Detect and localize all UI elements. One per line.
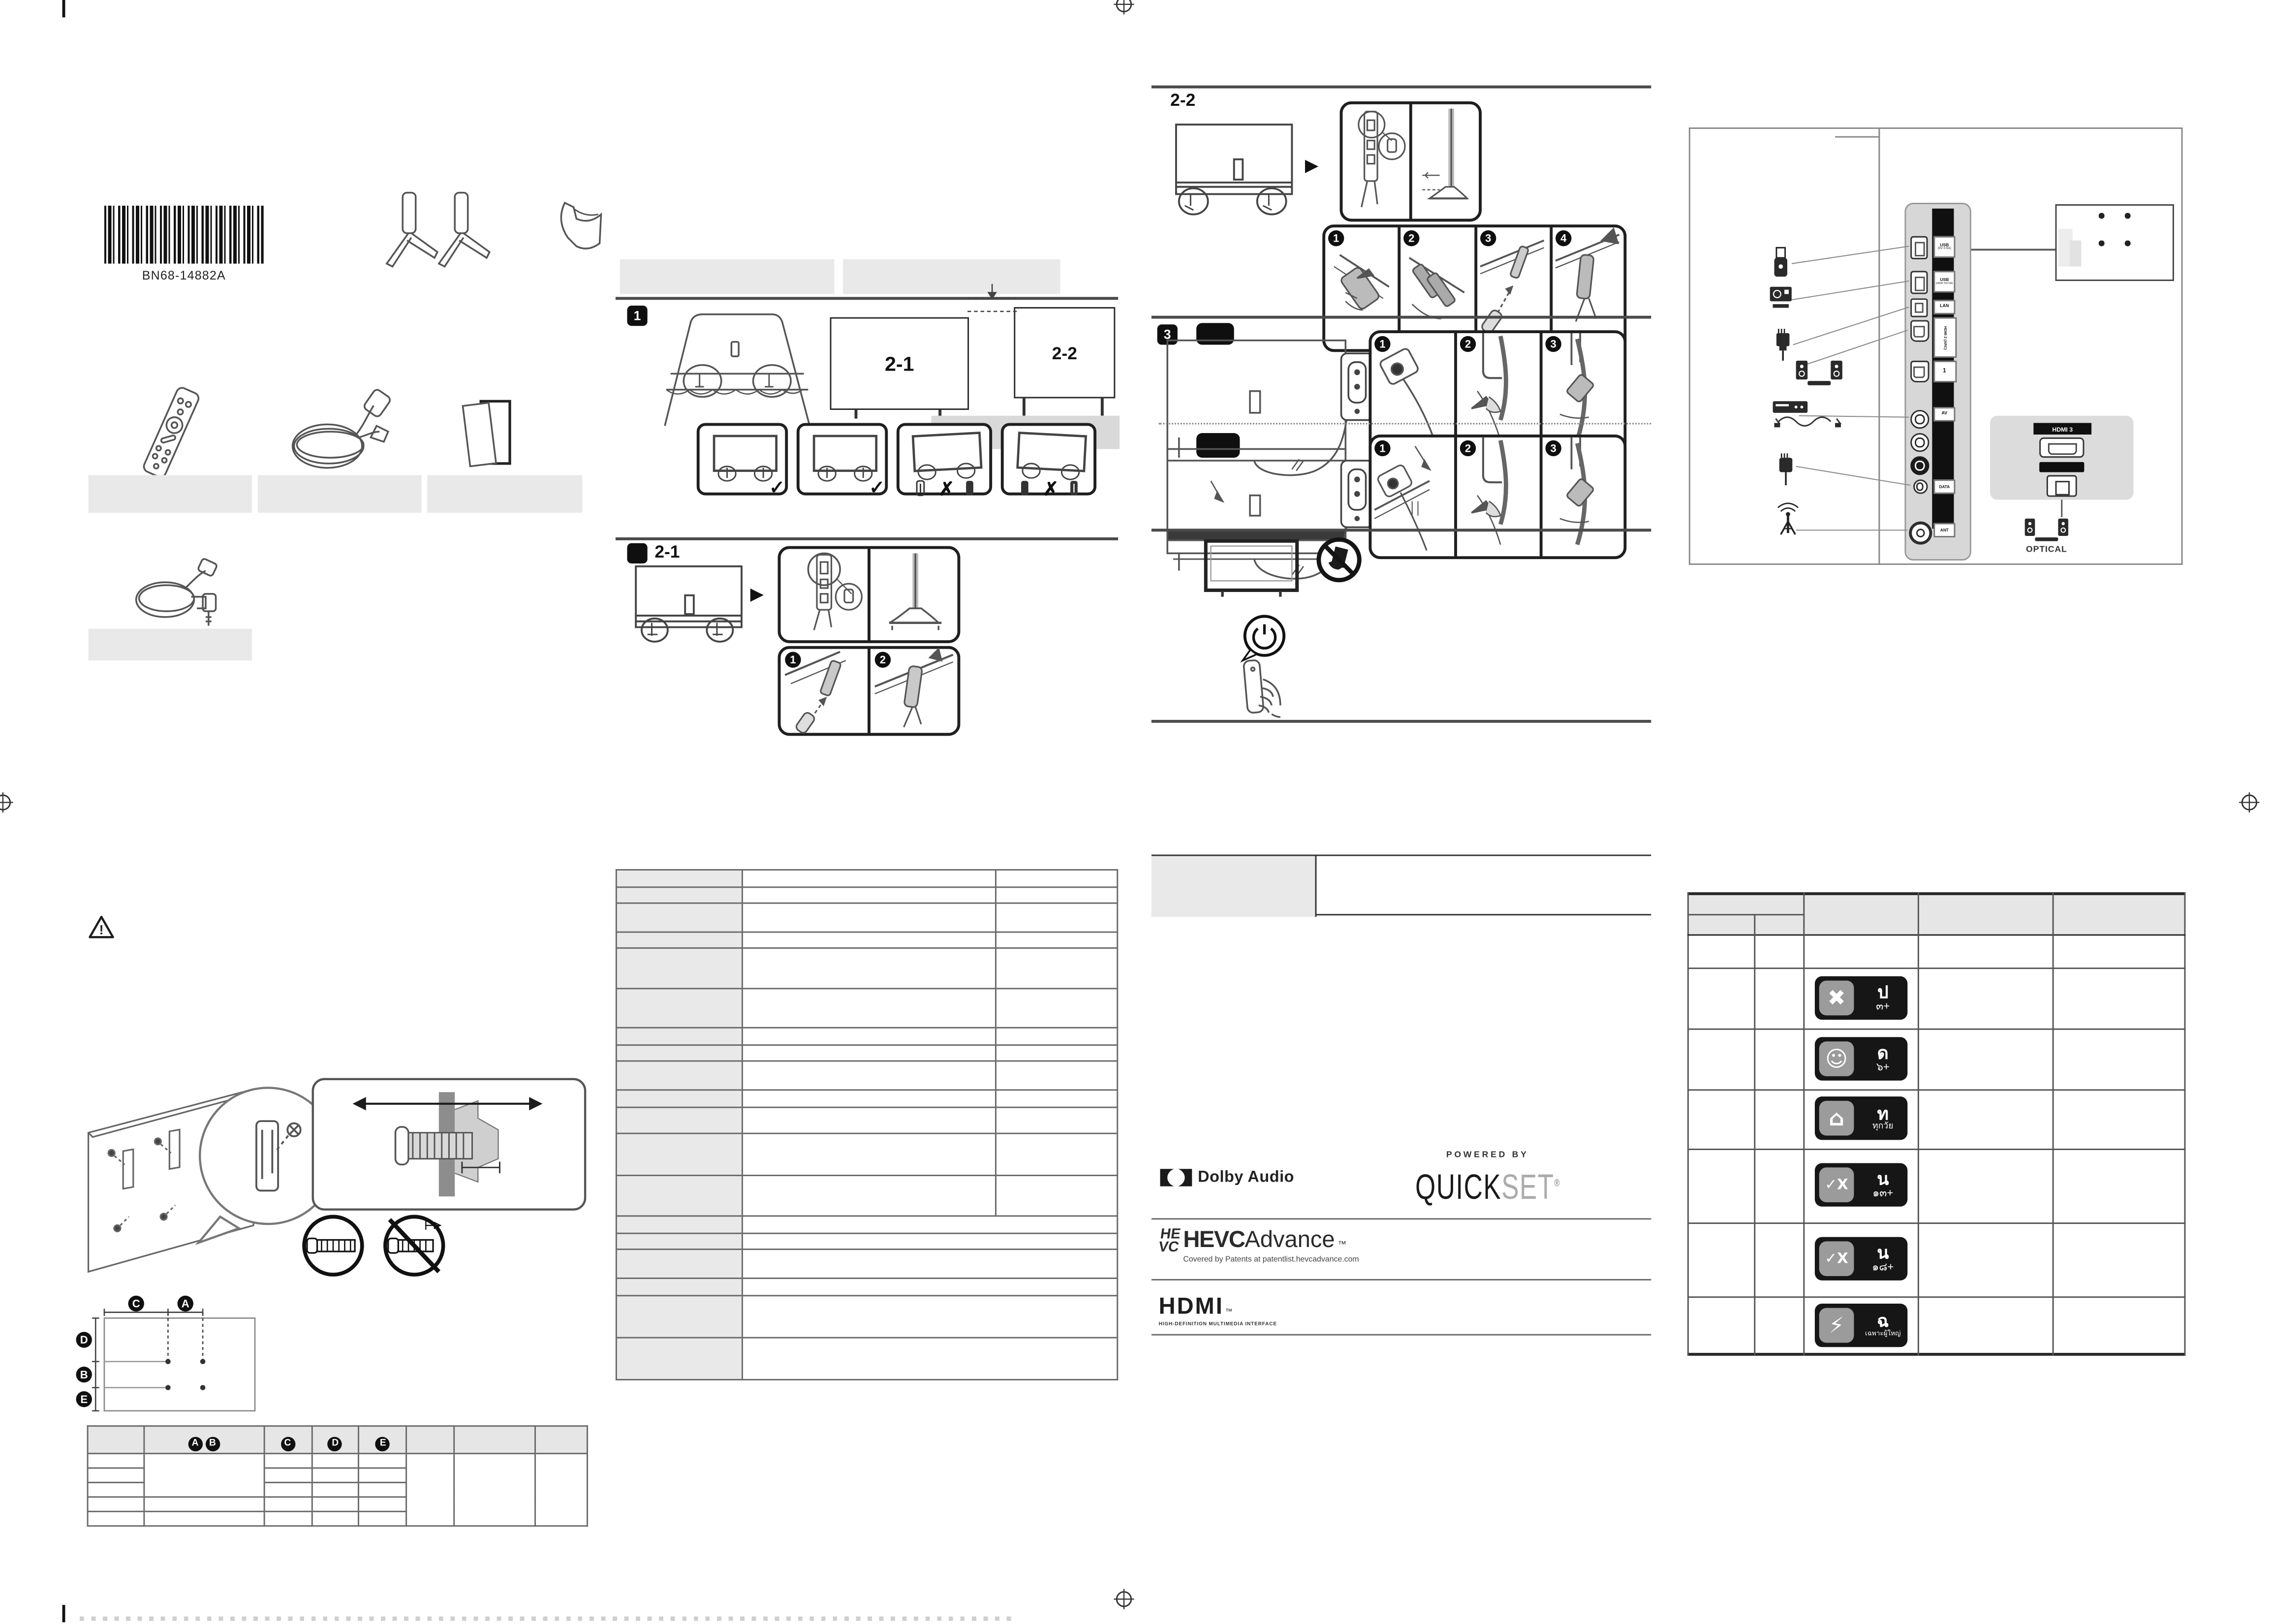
hdmi-tm: ™ bbox=[1225, 1308, 1233, 1317]
optical-port bbox=[2047, 475, 2077, 497]
spec-value bbox=[742, 948, 996, 988]
cell bbox=[311, 1454, 359, 1468]
hdmi3-label: HDMI 3 bbox=[2033, 423, 2091, 435]
panel-divider bbox=[1540, 436, 1542, 558]
spec-label bbox=[616, 932, 742, 948]
spec-table bbox=[616, 869, 1118, 1380]
spec-value bbox=[742, 1045, 996, 1061]
tv-front-diagram bbox=[1204, 539, 1302, 600]
screw-length-ok-icon bbox=[298, 1211, 458, 1280]
vesa-table-header-cell bbox=[88, 1426, 144, 1454]
svg-text:B: B bbox=[80, 1369, 88, 1381]
spec-value bbox=[742, 1249, 1118, 1279]
no-touch-screen-icon bbox=[1315, 536, 1363, 584]
svg-text:✗: ✗ bbox=[1043, 479, 1058, 500]
cell bbox=[359, 1454, 407, 1468]
tv-2-2-front: 2-2 bbox=[1014, 307, 1115, 398]
spec-value bbox=[742, 1216, 1118, 1233]
rating-symbol: ⚡ bbox=[1819, 1308, 1854, 1343]
section-2-2-label: 2-2 bbox=[1170, 90, 1195, 110]
data-cable-icon bbox=[1775, 452, 1796, 487]
accessory-label-docs bbox=[427, 475, 582, 513]
cell bbox=[144, 1497, 264, 1511]
spec-label bbox=[616, 887, 742, 903]
cell bbox=[407, 1454, 455, 1526]
spec-value bbox=[996, 932, 1118, 948]
hevc-tagline: Covered by Patents at patentlist.hevcadv… bbox=[1183, 1256, 1359, 1265]
hevc-mark-top: HE bbox=[1159, 1228, 1182, 1242]
tv-2-2-label: 2-2 bbox=[1052, 343, 1077, 363]
vesa-table-header-cell bbox=[407, 1426, 455, 1454]
advance-text: Advance bbox=[1244, 1228, 1335, 1254]
spec-value bbox=[996, 903, 1118, 932]
info-table-label-cell bbox=[1151, 856, 1317, 917]
height-difference-marks bbox=[967, 284, 1020, 319]
optical-speakers-icon bbox=[2022, 517, 2071, 545]
svg-text:✗: ✗ bbox=[938, 479, 954, 500]
cell bbox=[144, 1511, 264, 1526]
cell bbox=[144, 1454, 264, 1497]
tv-2-1-label: 2-1 bbox=[885, 352, 914, 375]
spec-label bbox=[616, 989, 742, 1028]
spec-value bbox=[742, 903, 996, 932]
vesa-spec-table: AB C D E bbox=[87, 1425, 588, 1527]
antenna-icon bbox=[1775, 504, 1800, 537]
spec-label bbox=[616, 1296, 742, 1338]
spec-value bbox=[996, 1175, 1118, 1216]
spec-value bbox=[996, 887, 1118, 903]
spec-value bbox=[742, 989, 996, 1028]
hole-dot bbox=[2099, 241, 2104, 246]
hole-dot bbox=[2125, 241, 2130, 246]
quickset-registered: ® bbox=[1555, 1179, 1560, 1190]
arrow-right-icon: ▶ bbox=[1305, 156, 1318, 174]
cell bbox=[264, 1454, 311, 1468]
spec-label bbox=[616, 1133, 742, 1175]
wall-mount-screw-callout bbox=[311, 1078, 587, 1211]
hevc-mark-icon: HE VC bbox=[1156, 1228, 1181, 1265]
cell bbox=[359, 1497, 407, 1511]
speakers-icon bbox=[1793, 359, 1845, 388]
power-step2-graphic-2 bbox=[1457, 437, 1537, 556]
info-table bbox=[1151, 855, 1651, 916]
documents-icon bbox=[461, 397, 516, 469]
spec-label bbox=[616, 1216, 742, 1233]
rating-badge-adult: ⚡ฉเฉพาะผู้ใหญ่ bbox=[1815, 1304, 1907, 1347]
spec-value bbox=[996, 1061, 1118, 1090]
hevc-tm: ™ bbox=[1338, 1241, 1347, 1250]
arrow-right-icon: ▶ bbox=[750, 585, 764, 602]
section-1-marker: 1 bbox=[627, 306, 647, 326]
rating-badge-general: ⌂ททุกวัย bbox=[1815, 1096, 1907, 1140]
spec-value bbox=[742, 870, 996, 887]
spec-value bbox=[742, 887, 996, 903]
tv-2-1-foot bbox=[855, 410, 858, 419]
dolby-icon bbox=[1159, 1167, 1194, 1187]
svg-text:A: A bbox=[182, 1298, 189, 1310]
svg-text:E: E bbox=[80, 1393, 88, 1405]
section-2-1-label: 2-1 bbox=[654, 542, 680, 562]
bracket-shape bbox=[2070, 241, 2082, 267]
optical-line bbox=[2061, 500, 2062, 517]
cell bbox=[311, 1497, 359, 1511]
holes-connector-line bbox=[1971, 249, 2055, 250]
badge-d: D bbox=[328, 1436, 342, 1450]
spec-value bbox=[996, 948, 1118, 988]
cell bbox=[88, 1468, 144, 1482]
cell bbox=[264, 1511, 311, 1526]
leg-sideview-2-2 bbox=[1417, 106, 1481, 218]
spec-value bbox=[996, 1045, 1118, 1061]
tv-2-1-front: 2-1 bbox=[830, 317, 969, 410]
stand-ok-card-2: ✓ bbox=[797, 423, 888, 495]
spec-value bbox=[742, 1338, 1118, 1379]
spec-value bbox=[996, 870, 1118, 887]
spec-value bbox=[996, 1107, 1118, 1133]
spec-label bbox=[616, 1175, 742, 1216]
spec-value bbox=[742, 1233, 1118, 1249]
spec-label bbox=[616, 1090, 742, 1107]
rating-symbol: ⌂ bbox=[1819, 1101, 1854, 1136]
barcode-label: BN68-14882A bbox=[104, 268, 264, 282]
spec-value bbox=[996, 1090, 1118, 1107]
accessory-label-remote bbox=[89, 475, 252, 513]
powered-by-text: POWERED BY bbox=[1408, 1152, 1567, 1160]
accessory-label-cable bbox=[258, 475, 422, 513]
crop-tick-top bbox=[62, 0, 65, 17]
cell bbox=[88, 1482, 144, 1497]
spec-label bbox=[616, 1249, 742, 1279]
tv-back-2-1-diagram bbox=[633, 563, 746, 645]
cell bbox=[264, 1482, 311, 1497]
cell bbox=[454, 1454, 535, 1526]
power-on-remote-graphic bbox=[1224, 613, 1302, 720]
vesa-table-header-ab: AB bbox=[144, 1426, 264, 1454]
cell bbox=[311, 1511, 359, 1526]
panel-divider bbox=[868, 648, 870, 735]
hevc-text: HEVC bbox=[1183, 1228, 1244, 1254]
rating-header-bg bbox=[1687, 892, 2185, 934]
registration-mark-right bbox=[2239, 792, 2259, 812]
cell bbox=[535, 1454, 588, 1526]
vesa-table-header-d: D bbox=[311, 1426, 359, 1454]
warning-icon: ! bbox=[89, 915, 115, 938]
panel-divider bbox=[868, 548, 870, 642]
cell bbox=[264, 1497, 311, 1511]
ethernet-cable-icon bbox=[1773, 327, 1793, 362]
rating-symbol: ✖ bbox=[1819, 981, 1854, 1016]
badge-b: B bbox=[205, 1436, 219, 1450]
hard-drive-icon bbox=[1769, 285, 1793, 309]
spec-label bbox=[616, 1338, 742, 1379]
badge-a: A bbox=[188, 1436, 202, 1450]
optical-label bbox=[2039, 462, 2084, 472]
panel-divider bbox=[1454, 436, 1457, 558]
svg-text:D: D bbox=[80, 1334, 88, 1346]
hevc-advance-logo: HE VC HEVC Advance ™ Covered by Patents … bbox=[1159, 1228, 1359, 1265]
section-1-number: 1 bbox=[634, 309, 641, 323]
cell bbox=[359, 1482, 407, 1497]
spec-value bbox=[996, 989, 1118, 1028]
power-step3-graphic-2 bbox=[1543, 437, 1622, 556]
divider bbox=[1151, 1218, 1651, 1219]
optical-text: OPTICAL bbox=[2013, 546, 2080, 555]
remote-control-icon bbox=[133, 385, 209, 481]
rating-badge-d6: ☺ด๖+ bbox=[1815, 1037, 1907, 1080]
spec-label bbox=[616, 903, 742, 932]
spec-value bbox=[996, 1133, 1118, 1175]
power-cable-icon bbox=[284, 388, 391, 481]
spec-label bbox=[616, 948, 742, 988]
registration-mark-bottom bbox=[1114, 1589, 1134, 1609]
holder-label-band bbox=[843, 259, 1060, 294]
crop-tick-bottom bbox=[62, 1605, 65, 1622]
rating-badge-n18: ✓Xน๑๘+ bbox=[1815, 1237, 1907, 1280]
stand-ok-card-1: ✓ bbox=[697, 423, 788, 495]
cell bbox=[311, 1468, 359, 1482]
cable-holder-icon bbox=[553, 194, 611, 255]
badge-c: C bbox=[280, 1436, 295, 1450]
dolby-text: Dolby Audio bbox=[1198, 1169, 1294, 1186]
rating-symbol: ✓X bbox=[1819, 1241, 1854, 1276]
badge-e: E bbox=[376, 1436, 390, 1450]
cell bbox=[359, 1511, 407, 1526]
quickset-quick: QUICK bbox=[1415, 1167, 1501, 1206]
leg-closeup-2-1 bbox=[785, 550, 863, 639]
divider bbox=[1151, 86, 1651, 88]
spec-label bbox=[616, 870, 742, 887]
svg-text:!: ! bbox=[99, 922, 104, 937]
quickset-logo: QUICKSET® bbox=[1402, 1167, 1573, 1208]
rating-symbol: ☺ bbox=[1819, 1041, 1854, 1076]
tv-back-2-2-diagram bbox=[1173, 122, 1304, 220]
spec-label bbox=[616, 1061, 742, 1090]
stand-legs-icon bbox=[379, 188, 521, 273]
soft-table-diagram bbox=[648, 310, 824, 432]
panel-divider bbox=[1409, 103, 1412, 220]
power-step1-graphic-2 bbox=[1371, 437, 1451, 556]
spec-value bbox=[742, 1278, 1118, 1295]
vesa-table-header-cell bbox=[454, 1426, 535, 1454]
step1-graphic-2-1 bbox=[782, 649, 866, 733]
vesa-dimension-diagram: CADBE bbox=[75, 1295, 267, 1422]
spec-value bbox=[742, 1175, 996, 1216]
divider bbox=[1151, 529, 1651, 531]
tv-2-2-leg bbox=[1023, 398, 1026, 415]
leg-closeup-2-2 bbox=[1344, 106, 1408, 218]
rating-badge-p3: ✖ป๓+ bbox=[1815, 976, 1907, 1020]
cell bbox=[359, 1468, 407, 1482]
svg-text:✓: ✓ bbox=[769, 477, 785, 499]
rating-symbol: ✓X bbox=[1819, 1167, 1854, 1202]
hdmi-tagline: HIGH-DEFINITION MULTIMEDIA INTERFACE bbox=[1159, 1321, 1277, 1327]
cell bbox=[88, 1511, 144, 1526]
spec-label bbox=[616, 1045, 742, 1061]
vesa-table-header-cell bbox=[535, 1426, 588, 1454]
cell bbox=[88, 1454, 144, 1468]
hevc-mark-bottom: VC bbox=[1157, 1242, 1180, 1255]
step2-graphic-2-1 bbox=[872, 649, 956, 733]
stand-wrong-card-2: ✗ bbox=[1001, 423, 1096, 495]
accessory-label-adapter bbox=[89, 628, 252, 660]
spec-label bbox=[616, 1233, 742, 1249]
stand-wrong-card-1: ✗ bbox=[897, 423, 992, 495]
divider bbox=[1151, 316, 1651, 318]
cell bbox=[311, 1482, 359, 1497]
cell bbox=[88, 1497, 144, 1511]
rating-badge-n13: ✓Xน๑๓+ bbox=[1815, 1163, 1907, 1206]
hdmi-text: HDMI bbox=[1159, 1295, 1224, 1321]
svg-text:✓: ✓ bbox=[869, 477, 885, 499]
vesa-table-header-c: C bbox=[264, 1426, 311, 1454]
registration-mark-top bbox=[1114, 0, 1134, 14]
variant-divider bbox=[1159, 423, 1651, 424]
hdmi-logo: HDMI™ HIGH-DEFINITION MULTIMEDIA INTERFA… bbox=[1159, 1295, 1277, 1327]
spec-label bbox=[616, 1028, 742, 1045]
spec-label bbox=[616, 1278, 742, 1295]
usb-stick-icon bbox=[1770, 246, 1792, 280]
info-table-value-cell bbox=[1316, 856, 1651, 917]
leg-sideview-2-1 bbox=[875, 550, 956, 639]
spec-value bbox=[742, 1107, 996, 1133]
spec-value bbox=[742, 1090, 996, 1107]
spec-value bbox=[742, 1061, 996, 1090]
section-2-1-marker bbox=[627, 543, 647, 563]
hole-dot bbox=[2099, 213, 2104, 219]
stand-label-band bbox=[620, 259, 835, 294]
divider bbox=[1151, 1334, 1651, 1336]
spec-value bbox=[742, 1133, 996, 1175]
rating-table: ✖ป๓+ ☺ด๖+ ⌂ททุกวัย ✓Xน๑๓+ ✓Xน๑๘+ ⚡ฉเฉพาะ… bbox=[1687, 892, 2185, 1356]
svg-text:C: C bbox=[132, 1298, 140, 1310]
dolby-audio-logo: Dolby Audio bbox=[1159, 1167, 1294, 1187]
hole-dot bbox=[2125, 213, 2130, 219]
divider bbox=[616, 537, 1118, 540]
spec-value bbox=[742, 932, 996, 948]
tv-2-2-leg bbox=[1101, 398, 1104, 415]
vesa-table-header-e: E bbox=[359, 1426, 407, 1454]
barcode bbox=[104, 206, 264, 264]
av-receiver-rca-icon bbox=[1773, 400, 1842, 432]
hdmi3-port bbox=[2039, 437, 2084, 458]
manual-sheet: BN68-14882A ! CADBE AB C D E bbox=[0, 0, 2271, 1624]
footer-print-marks bbox=[80, 1617, 1014, 1621]
cell bbox=[264, 1468, 311, 1482]
spec-value bbox=[742, 1028, 996, 1045]
spec-label bbox=[616, 1107, 742, 1133]
registration-mark-left bbox=[0, 792, 13, 812]
divider bbox=[616, 297, 1118, 299]
quickset-set: SET bbox=[1501, 1167, 1554, 1206]
adapter-cable-icon bbox=[127, 559, 235, 628]
divider bbox=[1151, 720, 1651, 722]
spec-value bbox=[996, 1028, 1118, 1045]
divider bbox=[1151, 1279, 1651, 1280]
spec-value bbox=[742, 1296, 1118, 1338]
